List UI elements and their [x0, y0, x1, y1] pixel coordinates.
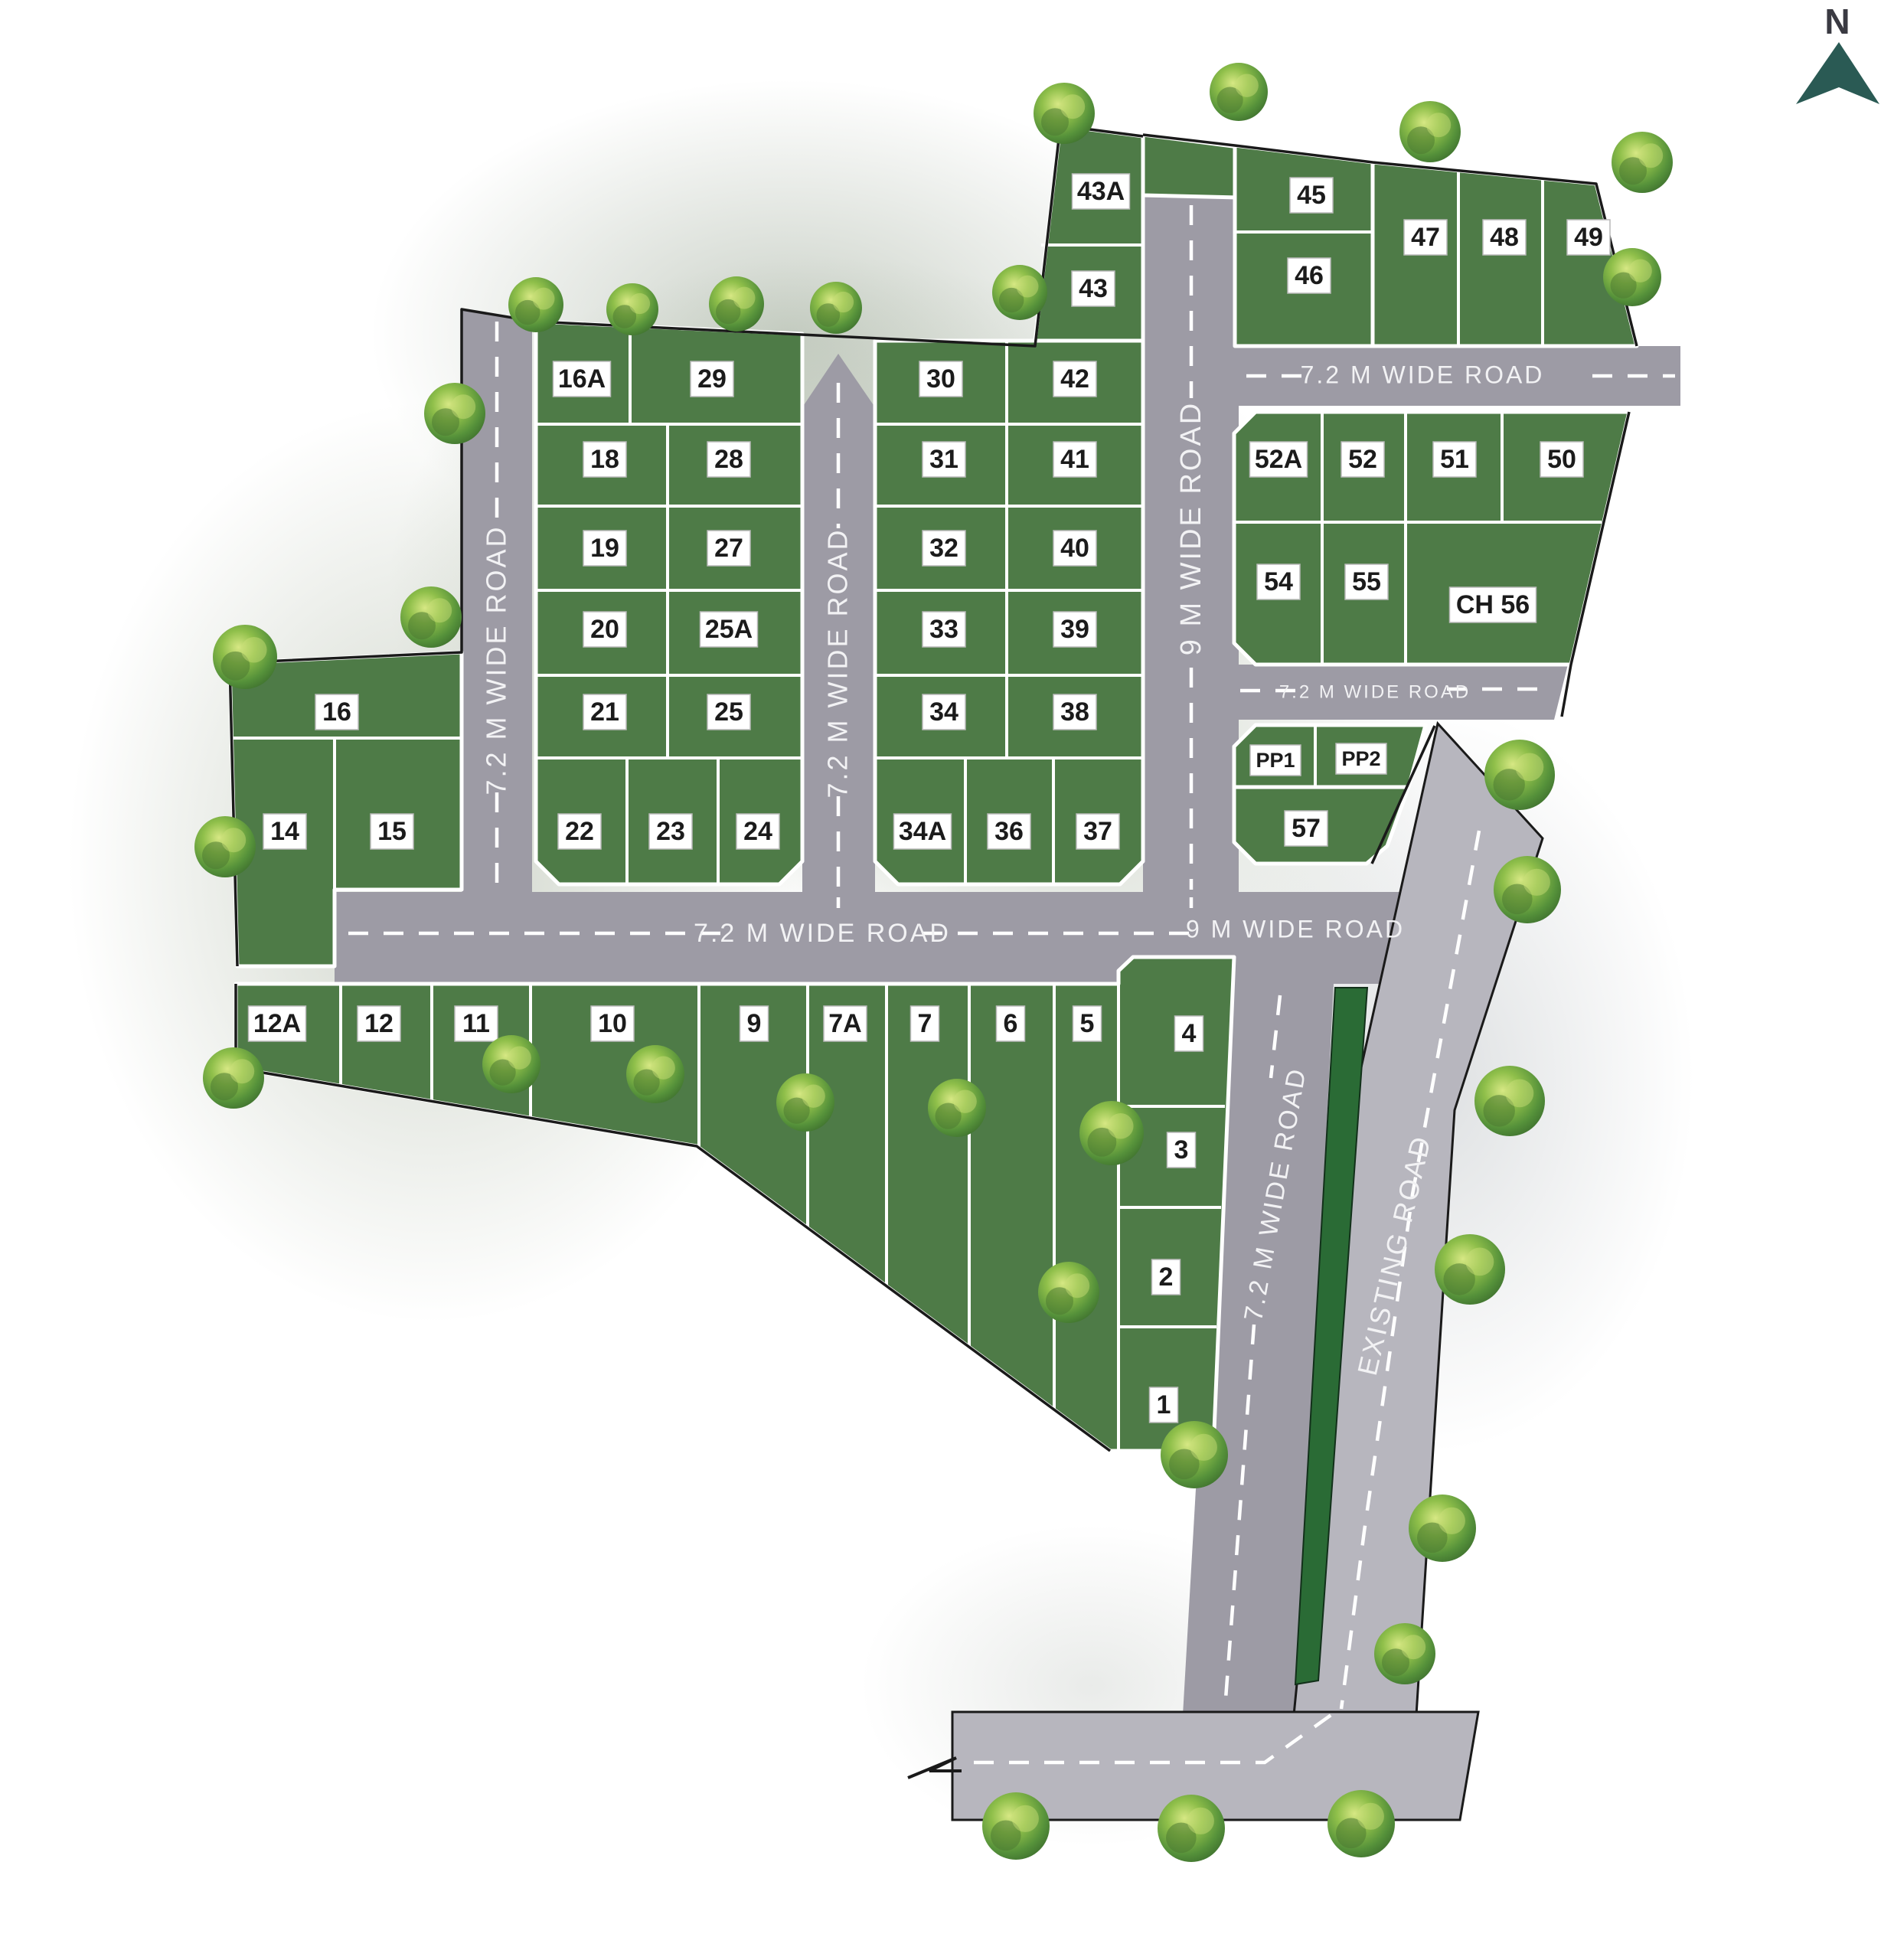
plot-11: 11	[455, 1006, 498, 1041]
plot-label: 41	[1060, 445, 1089, 474]
plot-25: 25	[707, 694, 750, 730]
plot-45: 45	[1290, 178, 1333, 213]
plot-52: 52	[1341, 442, 1384, 477]
plot-32: 32	[923, 531, 965, 566]
plot-24: 24	[736, 814, 779, 849]
plot-PP1: PP1	[1250, 745, 1301, 776]
tree-icon	[203, 1047, 264, 1109]
plot-label: 34	[929, 697, 958, 727]
plot-55: 55	[1345, 564, 1388, 599]
plot-label: CH 56	[1456, 590, 1530, 619]
plot-5: 5	[1073, 1006, 1102, 1041]
plot-37: 37	[1076, 814, 1119, 849]
plot-31: 31	[923, 442, 965, 477]
tree-icon	[1034, 83, 1095, 144]
plot-51: 51	[1433, 442, 1476, 477]
plot-PP2: PP2	[1336, 743, 1386, 774]
plot-label: 43A	[1077, 177, 1125, 206]
plot-label: 27	[714, 534, 743, 563]
plot-block-2	[1035, 126, 1143, 341]
plot-block-4	[1235, 145, 1373, 346]
plot-28: 28	[707, 442, 750, 477]
plot-label: PP2	[1341, 747, 1380, 770]
tree-icon	[626, 1045, 684, 1103]
plot-label: 40	[1060, 534, 1089, 563]
plot-label: 50	[1547, 445, 1576, 474]
plot-21: 21	[583, 694, 626, 730]
plot-2: 2	[1152, 1259, 1181, 1295]
plot-label: 24	[743, 817, 772, 846]
plot-label: 47	[1411, 223, 1440, 252]
plot-label: 25A	[705, 615, 753, 644]
plot-label: 48	[1490, 223, 1519, 252]
site-plan-map: 7.2 M WIDE ROAD9 M WIDE ROAD7.2 M WIDE R…	[0, 0, 1881, 1960]
road-label: 7.2 M WIDE ROAD	[1279, 681, 1471, 702]
road-label: 9 M WIDE ROAD	[1175, 401, 1207, 655]
plot-54: 54	[1257, 564, 1300, 599]
plot-6: 6	[997, 1006, 1025, 1041]
tree-icon	[1612, 132, 1673, 193]
plot-label: 14	[270, 817, 299, 846]
plot-7A: 7A	[824, 1006, 867, 1041]
plot-label: 12A	[253, 1009, 301, 1038]
road-label: 7.2 M WIDE ROAD	[1301, 361, 1545, 388]
north-indicator: N	[1796, 2, 1879, 104]
plot-50: 50	[1540, 442, 1583, 477]
plot-label: 52	[1348, 445, 1377, 474]
plot-label: 16A	[558, 364, 606, 394]
north-label: N	[1824, 2, 1850, 41]
plot-34A: 34A	[894, 814, 952, 849]
plot-23: 23	[649, 814, 692, 849]
plot-57: 57	[1285, 811, 1327, 846]
road-label: 7.2 M WIDE ROAD	[694, 919, 951, 948]
tree-icon	[1603, 248, 1661, 306]
tree-icon	[400, 586, 462, 648]
tree-icon	[776, 1073, 834, 1132]
plot-label: 1	[1157, 1390, 1171, 1419]
plot-label: 38	[1060, 697, 1089, 727]
plot-label: 32	[929, 534, 958, 563]
plot-43A: 43A	[1073, 174, 1130, 209]
plot-label: 19	[590, 534, 619, 563]
plot-label: 36	[994, 817, 1024, 846]
plot-label: 12	[364, 1009, 394, 1038]
tree-icon	[213, 625, 277, 689]
tree-icon	[482, 1035, 540, 1093]
plot-20: 20	[583, 612, 626, 647]
plot-12: 12	[358, 1006, 400, 1041]
plot-16A: 16A	[554, 361, 611, 397]
tree-icon	[810, 282, 862, 334]
plot-label: 22	[565, 817, 594, 846]
plot-49: 49	[1567, 220, 1610, 255]
plot-label: 31	[929, 445, 958, 474]
plot-label: 7A	[828, 1009, 861, 1038]
plot-label: 23	[656, 817, 685, 846]
plot-label: 11	[462, 1009, 490, 1038]
plot-label: 9	[747, 1009, 762, 1038]
plot-label: 25	[714, 697, 743, 727]
plot-label: 46	[1295, 261, 1324, 290]
plot-48: 48	[1483, 220, 1526, 255]
north-arrow-icon	[1796, 42, 1879, 104]
tree-icon	[709, 276, 764, 332]
tree-icon	[1435, 1234, 1505, 1305]
tree-icon	[1038, 1262, 1099, 1323]
plot-9: 9	[740, 1006, 769, 1041]
plot-43: 43	[1072, 271, 1115, 306]
plot-25A: 25A	[700, 612, 758, 647]
plot-30: 30	[919, 361, 962, 397]
plot-label: 37	[1083, 817, 1112, 846]
plot-39: 39	[1053, 612, 1096, 647]
tree-icon	[1409, 1494, 1476, 1562]
plot-label: 52A	[1255, 445, 1302, 474]
plot-label: 39	[1060, 615, 1089, 644]
plot-label: 42	[1060, 364, 1089, 394]
tree-icon	[1399, 101, 1461, 162]
plot-36: 36	[988, 814, 1030, 849]
plot-label: 3	[1174, 1135, 1189, 1165]
plot-18: 18	[583, 442, 626, 477]
tree-icon	[194, 816, 256, 877]
tree-icon	[424, 383, 485, 444]
plot-label: 33	[929, 615, 958, 644]
tree-icon	[1327, 1790, 1395, 1857]
plot-label: PP1	[1256, 749, 1295, 772]
tree-icon	[1494, 856, 1561, 923]
plot-40: 40	[1053, 531, 1096, 566]
plot-34: 34	[923, 694, 965, 730]
plot-10: 10	[591, 1006, 634, 1041]
plot-label: 2	[1159, 1263, 1174, 1292]
road-label: 7.2 M WIDE ROAD	[481, 524, 512, 795]
plot-16: 16	[315, 694, 358, 730]
plot-block-1	[875, 341, 1143, 884]
plot-12A: 12A	[249, 1006, 306, 1041]
tree-icon	[508, 277, 563, 332]
plot-label: 51	[1440, 445, 1469, 474]
tree-icon	[1484, 740, 1555, 810]
plot-46: 46	[1288, 258, 1331, 293]
plot-1: 1	[1150, 1387, 1178, 1423]
plot-33: 33	[923, 612, 965, 647]
tree-icon	[982, 1792, 1050, 1860]
plot-label: 15	[377, 817, 407, 846]
plot-label: 5	[1080, 1009, 1095, 1038]
road-label: 7.2 M WIDE ROAD	[822, 528, 854, 798]
tree-icon	[1210, 63, 1268, 121]
plot-label: 4	[1182, 1019, 1197, 1048]
plot-label: 54	[1264, 567, 1293, 596]
plot-label: 21	[590, 697, 619, 727]
plot-label: 18	[590, 445, 619, 474]
plot-label: 34A	[899, 817, 946, 846]
plot-7: 7	[911, 1006, 939, 1041]
plot-CH56: CH 56	[1450, 587, 1536, 622]
road-label: 9 M WIDE ROAD	[1186, 915, 1405, 942]
site-layout-plan: 7.2 M WIDE ROAD9 M WIDE ROAD7.2 M WIDE R…	[0, 0, 1881, 1960]
plot-4: 4	[1175, 1016, 1203, 1051]
plot-label: 49	[1574, 223, 1603, 252]
plot-label: 30	[926, 364, 955, 394]
tree-icon	[992, 265, 1047, 320]
plot-3: 3	[1167, 1132, 1196, 1168]
tree-icon	[606, 283, 658, 335]
plot-label: 20	[590, 615, 619, 644]
tree-icon	[1161, 1421, 1228, 1488]
plot-29: 29	[691, 361, 733, 397]
plot-label: 7	[918, 1009, 932, 1038]
plot-38: 38	[1053, 694, 1096, 730]
plot-52A: 52A	[1250, 442, 1308, 477]
plot-label: 45	[1297, 181, 1326, 210]
plot-label: 28	[714, 445, 743, 474]
plot-label: 10	[598, 1009, 627, 1038]
plot-label: 6	[1004, 1009, 1018, 1038]
plot-42: 42	[1053, 361, 1096, 397]
tree-icon	[1079, 1101, 1144, 1165]
plot-label: 16	[322, 697, 351, 727]
plot-22: 22	[558, 814, 601, 849]
plot-label: 43	[1079, 274, 1108, 303]
plot-27: 27	[707, 531, 750, 566]
plot-label: 55	[1352, 567, 1381, 596]
plot-14: 14	[263, 814, 306, 849]
plot-19: 19	[583, 531, 626, 566]
plot-41: 41	[1053, 442, 1096, 477]
plot-15: 15	[371, 814, 413, 849]
tree-icon	[1158, 1795, 1225, 1862]
tree-icon	[1474, 1066, 1545, 1136]
tree-icon	[1374, 1623, 1435, 1684]
plot-label: 57	[1292, 814, 1321, 843]
tree-icon	[928, 1079, 986, 1137]
plot-label: 29	[697, 364, 727, 394]
plot-47: 47	[1404, 220, 1447, 255]
